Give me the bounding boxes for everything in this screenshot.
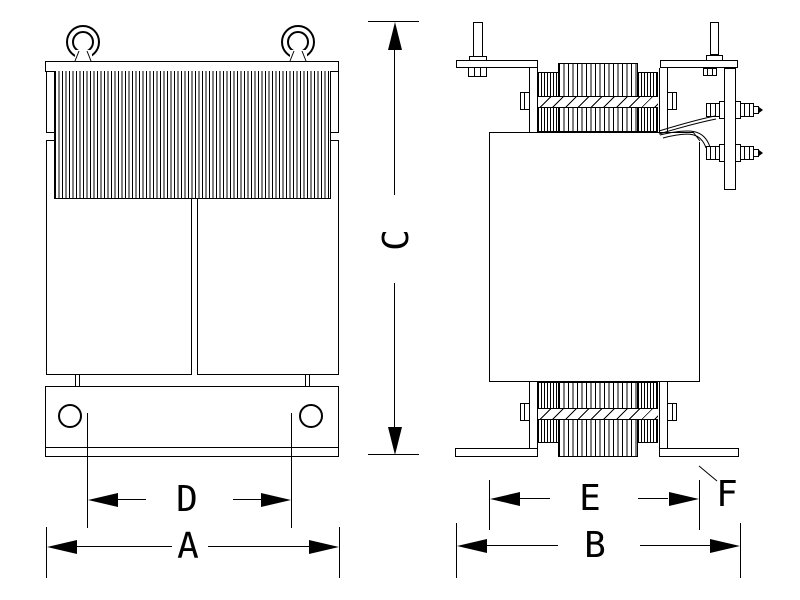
- wire-upper-2: [659, 119, 716, 134]
- wire-lower-1: [660, 131, 710, 147]
- technical-drawing: D A C: [0, 0, 800, 600]
- dim-f-leader-line: [699, 466, 717, 481]
- overlay-curves: [0, 0, 800, 600]
- wire-upper-1: [659, 116, 715, 131]
